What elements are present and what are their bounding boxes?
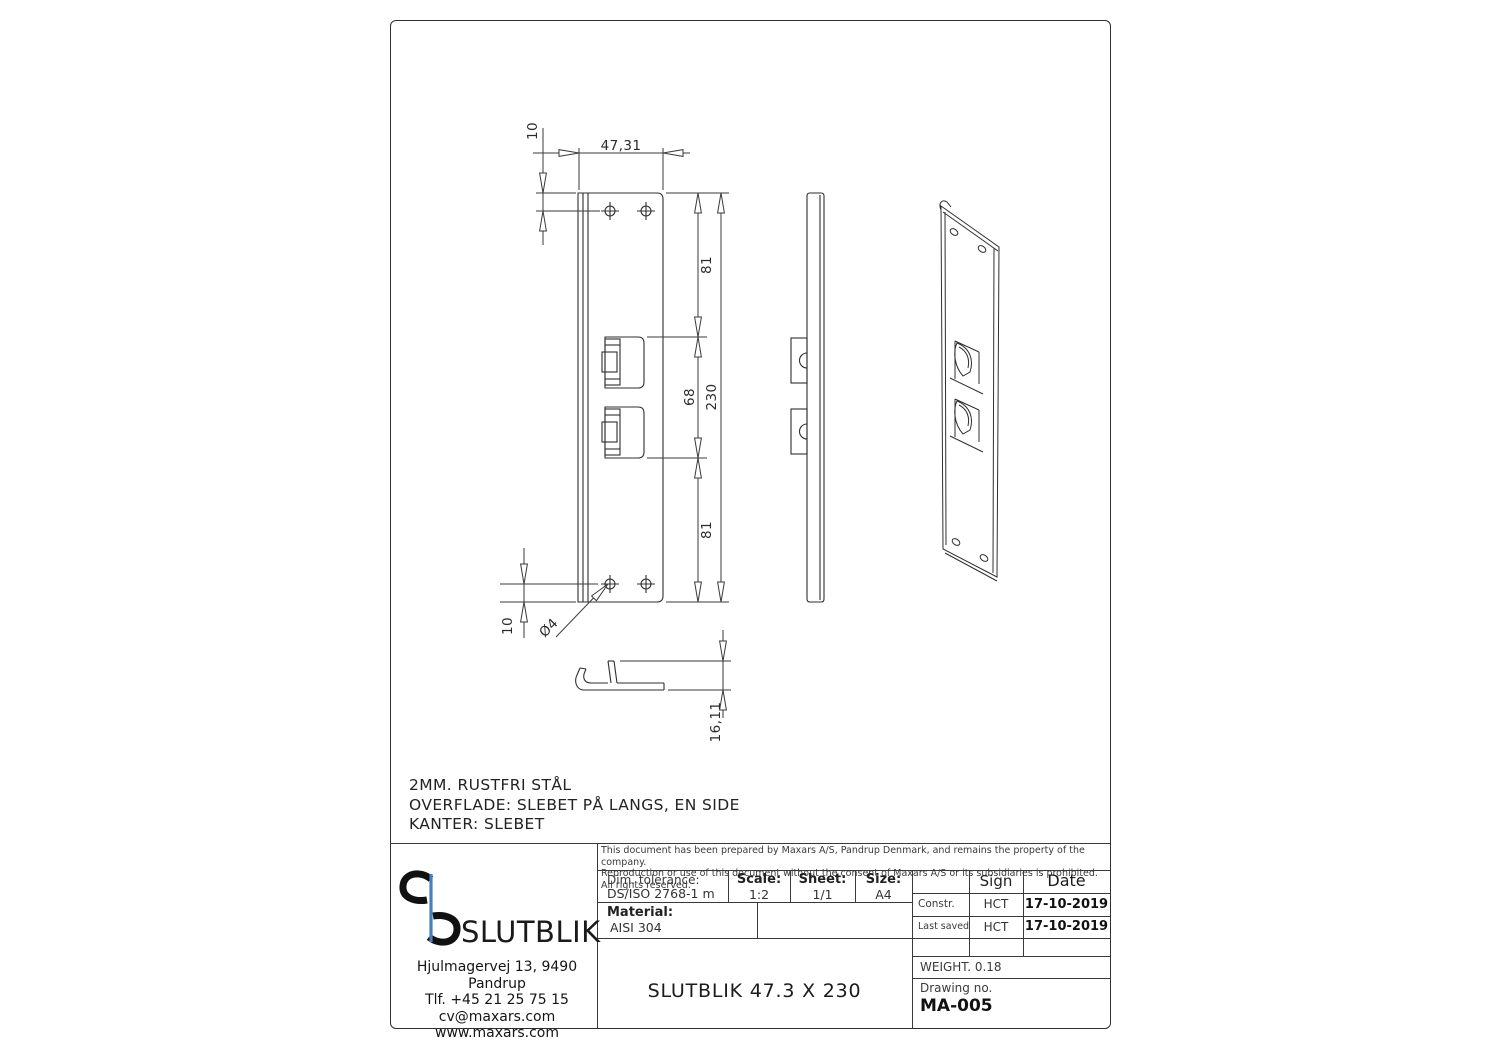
- last-saved-label: Last saved: [918, 916, 969, 938]
- dim-tolerance-value: DS/ISO 2768-1 m: [607, 886, 715, 901]
- constr-label: Constr.: [918, 893, 955, 916]
- side-view: [791, 193, 824, 602]
- scale-label: Scale:: [728, 872, 790, 887]
- iso-outline: [941, 206, 999, 577]
- dim-overall-height: 230: [704, 384, 720, 411]
- sheet-label: Sheet:: [790, 872, 855, 887]
- iso-hole: [979, 553, 989, 562]
- dim-arrow: [718, 193, 725, 213]
- constr-sign: HCT: [969, 893, 1023, 916]
- iso-latch-cutout-2: [950, 399, 983, 452]
- sheet-value: 1/1: [790, 887, 855, 902]
- dim-arrow: [521, 602, 528, 622]
- dim-arrow: [663, 150, 683, 157]
- dim-section-bottom: 81: [699, 521, 715, 539]
- bent-tab: [608, 661, 611, 683]
- size-label: Size:: [855, 872, 912, 887]
- plate-outline: [578, 193, 663, 602]
- leader-arrow: [592, 584, 608, 601]
- dim-arrow: [540, 211, 547, 231]
- latch-cutout-2: [602, 407, 644, 458]
- keeper-bump: [800, 353, 807, 368]
- dim-section-top: 81: [699, 256, 715, 274]
- size-value: A4: [855, 887, 912, 902]
- mounting-hole: [637, 202, 655, 220]
- company-logo-text: SLUTBLIK: [461, 915, 601, 949]
- last-saved-date: 17-10-2019: [1023, 916, 1110, 938]
- weight-value: WEIGHT. 0.18: [920, 956, 1002, 978]
- company-logo-icon: [398, 866, 462, 950]
- mounting-hole: [637, 575, 655, 593]
- scale-value: 1:2: [728, 887, 790, 902]
- drawing-no-label: Drawing no.: [920, 981, 992, 995]
- isometric-view: [940, 201, 999, 581]
- material-notes: 2MM. RUSTFRI STÅL OVERFLADE: SLEBET PÅ L…: [409, 776, 740, 835]
- constr-date: 17-10-2019: [1023, 893, 1110, 916]
- date-header: Date: [1023, 869, 1110, 893]
- sign-header: Sign: [969, 870, 1023, 893]
- note-line: OVERFLADE: SLEBET PÅ LANGS, EN SIDE: [409, 796, 740, 816]
- last-saved-sign: HCT: [969, 916, 1023, 938]
- company-phone: Tlf. +45 21 25 75 15: [397, 992, 597, 1009]
- latch-cutout-1: [602, 337, 644, 388]
- iso-latch-cutout-1: [950, 341, 983, 394]
- company-address-block: Hjulmagervej 13, 9490 Pandrup Tlf. +45 2…: [397, 959, 597, 1042]
- dim-section-middle: 68: [682, 388, 698, 406]
- hook-flange: [576, 668, 583, 690]
- dim-top-hole-offset: 10: [525, 122, 541, 140]
- bottom-profile-view: [576, 661, 664, 690]
- iso-hole: [949, 227, 959, 236]
- part-title: SLUTBLIK 47.3 X 230: [597, 980, 912, 1002]
- dim-plate-width: 47,31: [601, 138, 642, 154]
- dim-arrow: [695, 458, 702, 478]
- company-website: www.maxars.com: [397, 1025, 597, 1042]
- keeper-bump: [800, 424, 807, 439]
- iso-hole: [951, 537, 961, 546]
- dimension-lines: [500, 128, 731, 718]
- dim-arrow: [695, 193, 702, 213]
- note-line: 2MM. RUSTFRI STÅL: [409, 776, 740, 796]
- iso-hole: [977, 244, 987, 253]
- dim-arrow: [720, 641, 727, 661]
- dim-arrow: [540, 173, 547, 193]
- dim-arrow: [559, 150, 579, 157]
- front-view: [578, 193, 663, 602]
- drawing-no-value: MA-005: [920, 996, 993, 1016]
- dim-arrow: [695, 317, 702, 337]
- dim-flange-height: 16,11: [708, 702, 724, 743]
- disclaimer-line: This document has been prepared by Maxar…: [601, 845, 1106, 868]
- note-line: KANTER: SLEBET: [409, 815, 740, 835]
- dim-arrow: [695, 438, 702, 458]
- material-label: Material:: [607, 905, 673, 920]
- dim-hole-diameter: Ø4: [536, 615, 561, 640]
- dim-bottom-hole-offset: 10: [500, 617, 516, 635]
- dim-arrow: [695, 582, 702, 602]
- dim-arrow: [521, 564, 528, 584]
- material-value: AISI 304: [610, 920, 662, 935]
- company-email: cv@maxars.com: [397, 1009, 597, 1026]
- company-address: Hjulmagervej 13, 9490 Pandrup: [397, 959, 597, 992]
- dim-tolerance-label: Dim. tolerance:: [607, 873, 700, 887]
- dim-arrow: [695, 337, 702, 357]
- mounting-hole: [601, 202, 619, 220]
- strip-outline: [807, 193, 824, 602]
- dim-arrow: [718, 582, 725, 602]
